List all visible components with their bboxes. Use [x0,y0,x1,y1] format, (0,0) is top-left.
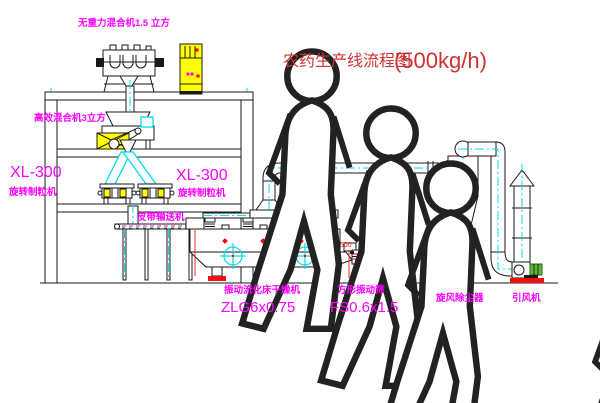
support-pad [208,276,226,281]
label-belt-conveyor: 皮带输送机 [136,211,185,223]
diagram-title: 农药生产线流程图 [283,52,411,70]
indicator-light [195,48,199,52]
label-high-eff-mixer: 高效混合机3立方 [34,112,106,124]
label-fan: 引风机 [512,292,541,304]
label-screen-model: FS0.6x1.5 [330,299,398,316]
label-cyclone: 旋风除尘器 [435,292,484,304]
granulator-left [98,184,136,204]
fan-motor [530,264,542,275]
control-cabinet-top [180,44,202,94]
fan-base [510,278,544,283]
label-xl300-mid: XL-300 [176,167,228,184]
granulator-right [136,184,174,204]
label-dryer: 振动流化床干燥机 [224,284,301,296]
label-gravity-mixer: 无重力混合机1.5 立方 [77,17,170,29]
person-figure [569,243,600,403]
label-dryer-model: ZLG6x0.75 [221,299,295,316]
label-granulator-mid: 旋转制粒机 [177,187,226,199]
process-flow-diagram: 1500 540 Φ600 [0,0,600,403]
gravity-mixer [96,45,164,116]
label-xl300-left: XL-300 [10,164,62,181]
label-screen: 方形振动筛 [337,284,385,296]
label-granulator-left: 旋转制粒机 [8,186,57,198]
cad-drawing: 1500 540 Φ600 [0,0,600,403]
indicator-light [196,74,200,78]
induced-draft-fan [510,262,544,283]
diagram-capacity: (500kg/h) [394,48,487,73]
